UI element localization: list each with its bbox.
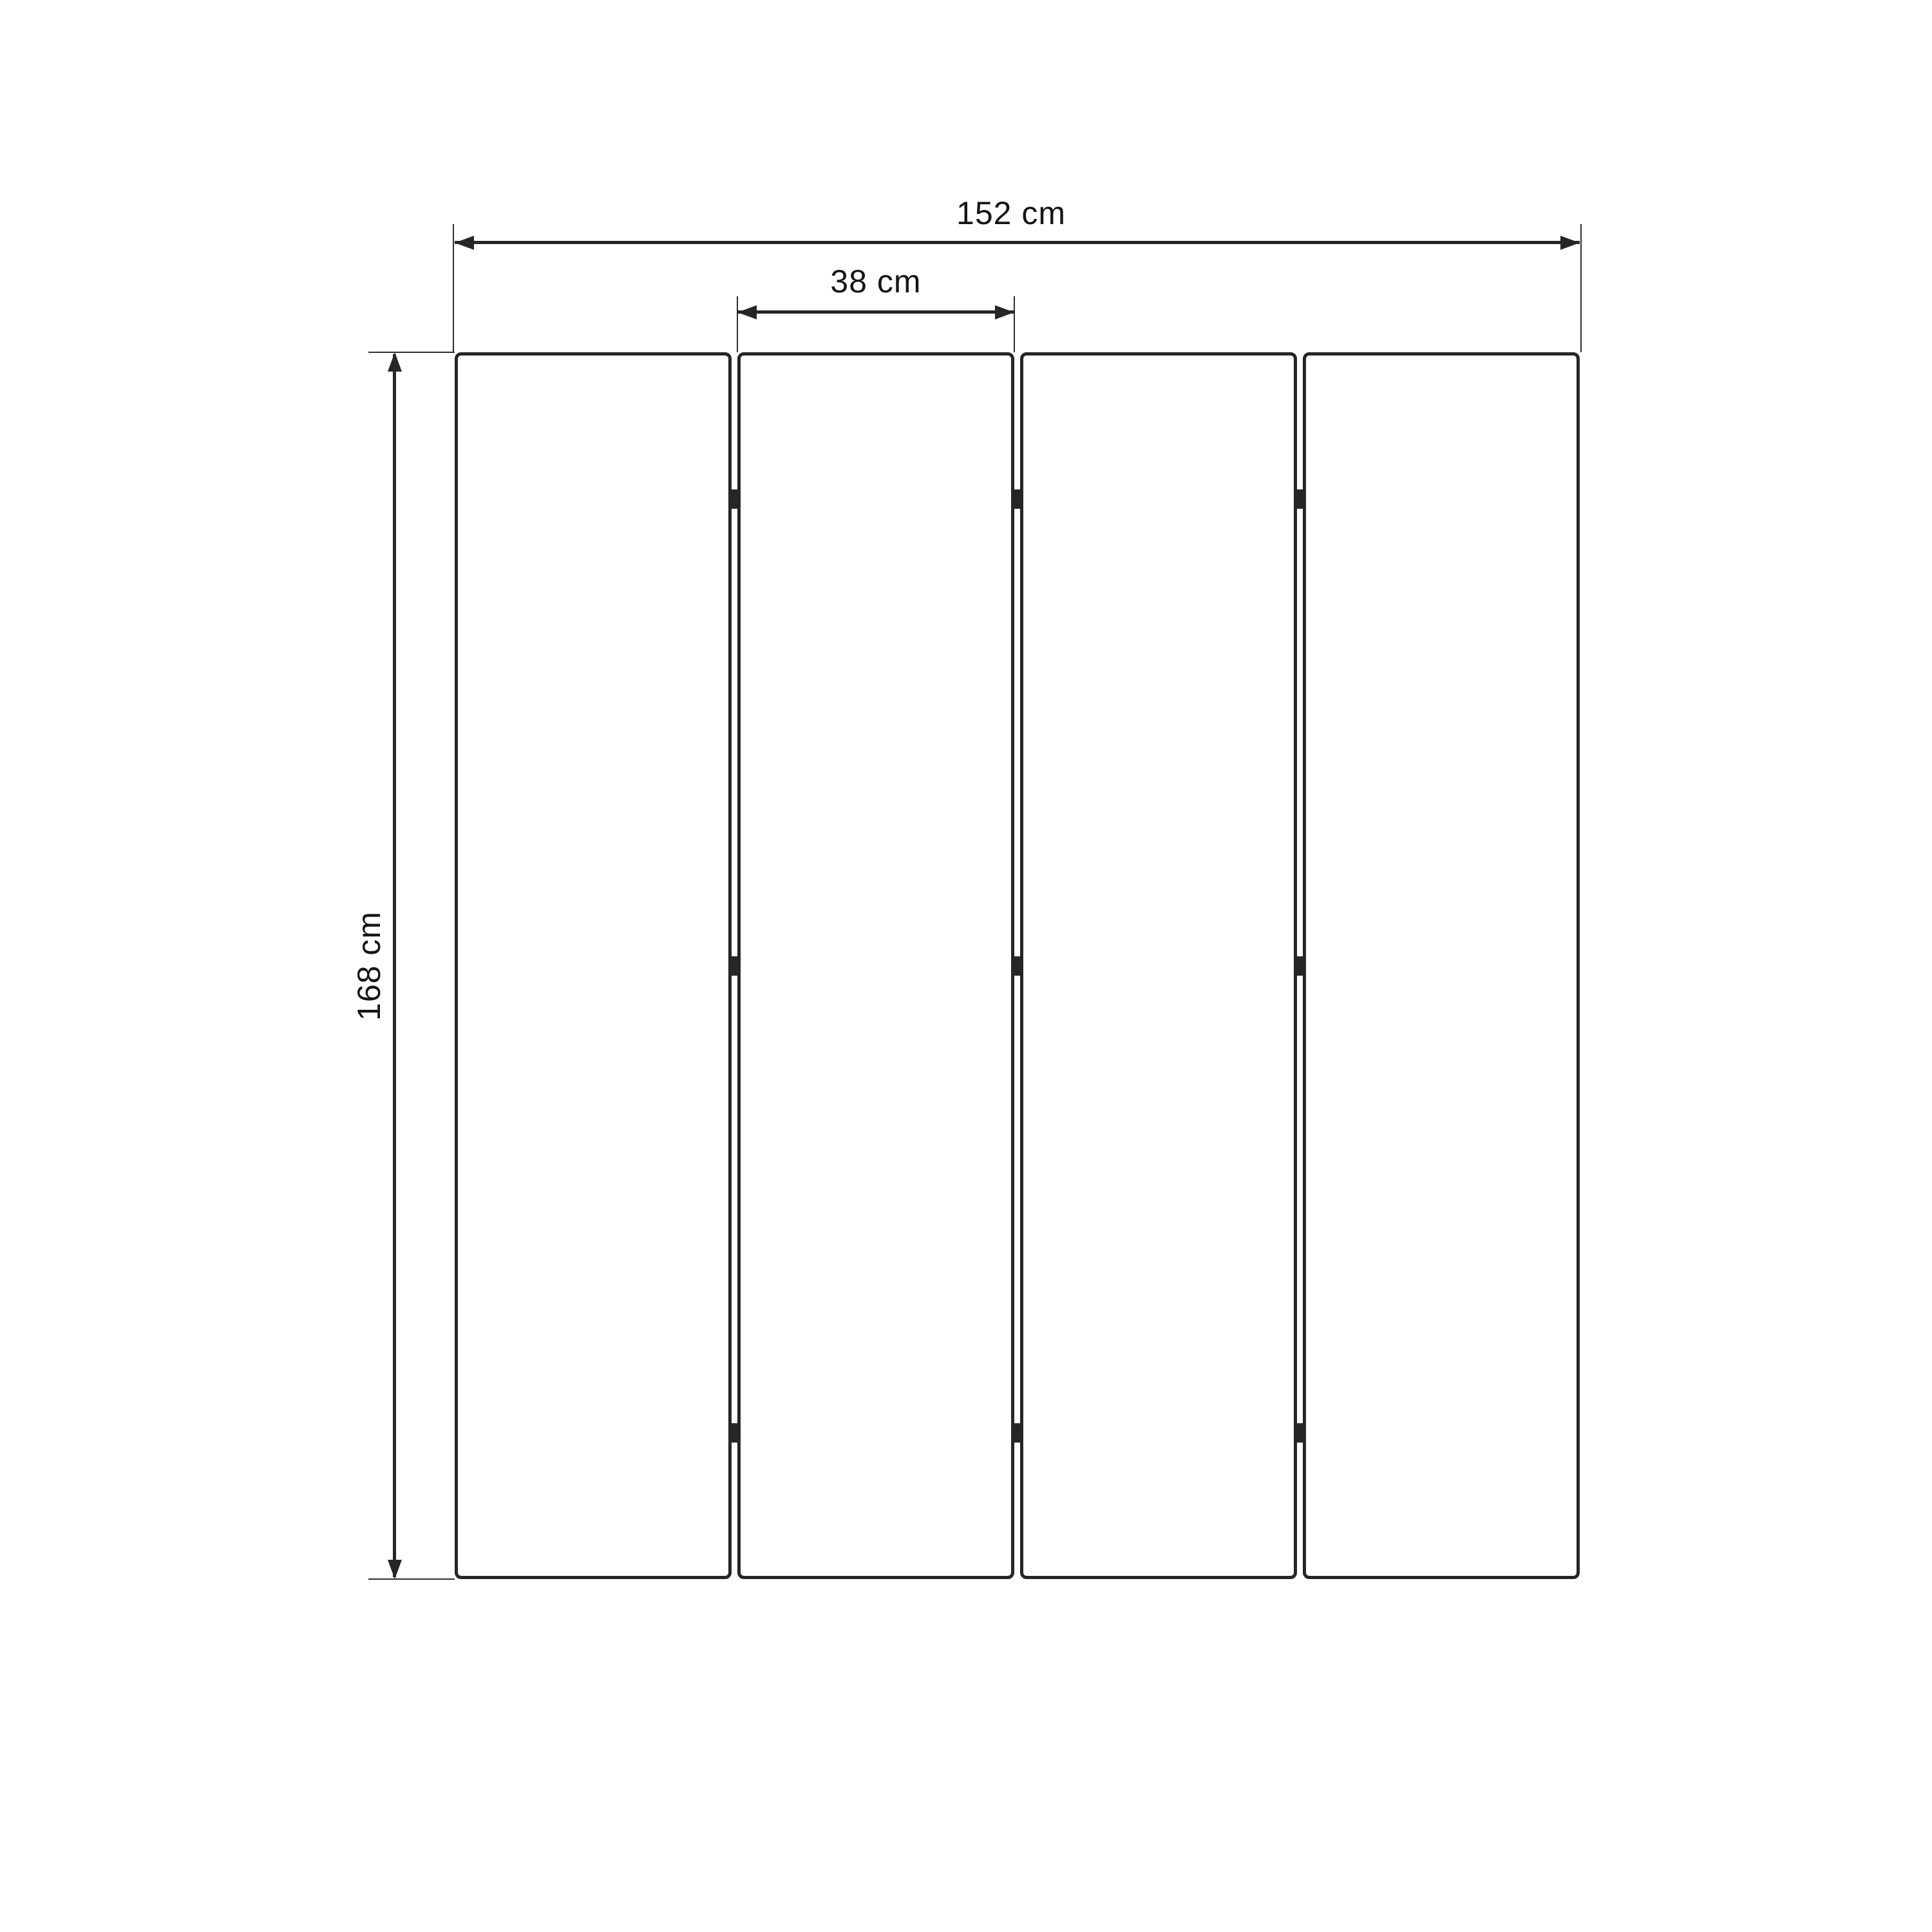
panel-3 [1020, 352, 1297, 1579]
hinge-mark [1294, 489, 1305, 509]
extension-line-right [1580, 224, 1582, 352]
arrow-right-icon [1560, 236, 1580, 250]
hinge-mark [1294, 1423, 1305, 1443]
extension-line-left [453, 224, 454, 352]
arrow-down-icon [388, 1560, 402, 1579]
hinge-mark [1294, 956, 1305, 976]
panel-2 [737, 352, 1014, 1579]
dimension-line-total-width [455, 241, 1580, 244]
hinge-mark [1011, 956, 1023, 976]
hinge-mark [728, 1423, 740, 1443]
arrow-up-icon [388, 352, 402, 372]
arrow-right-icon [995, 305, 1014, 319]
arrow-left-icon [455, 236, 474, 250]
extension-tick-bottom [368, 1578, 455, 1580]
hinge-mark [1011, 1423, 1023, 1443]
hinge-mark [728, 489, 740, 509]
dimension-line-panel-width [737, 310, 1014, 314]
hinge-mark [728, 956, 740, 976]
extension-tick-top [368, 352, 455, 353]
height-label: 168 cm [349, 837, 389, 1095]
dimension-line-height [393, 354, 396, 1577]
panel-1 [455, 352, 732, 1579]
hinge-mark [1011, 489, 1023, 509]
panel-4 [1303, 352, 1580, 1579]
total-width-label: 152 cm [882, 193, 1140, 233]
arrow-left-icon [737, 305, 757, 319]
dimension-drawing: 152 cm 38 cm 168 cm [0, 0, 1932, 1932]
panel-width-label: 38 cm [747, 261, 1005, 301]
